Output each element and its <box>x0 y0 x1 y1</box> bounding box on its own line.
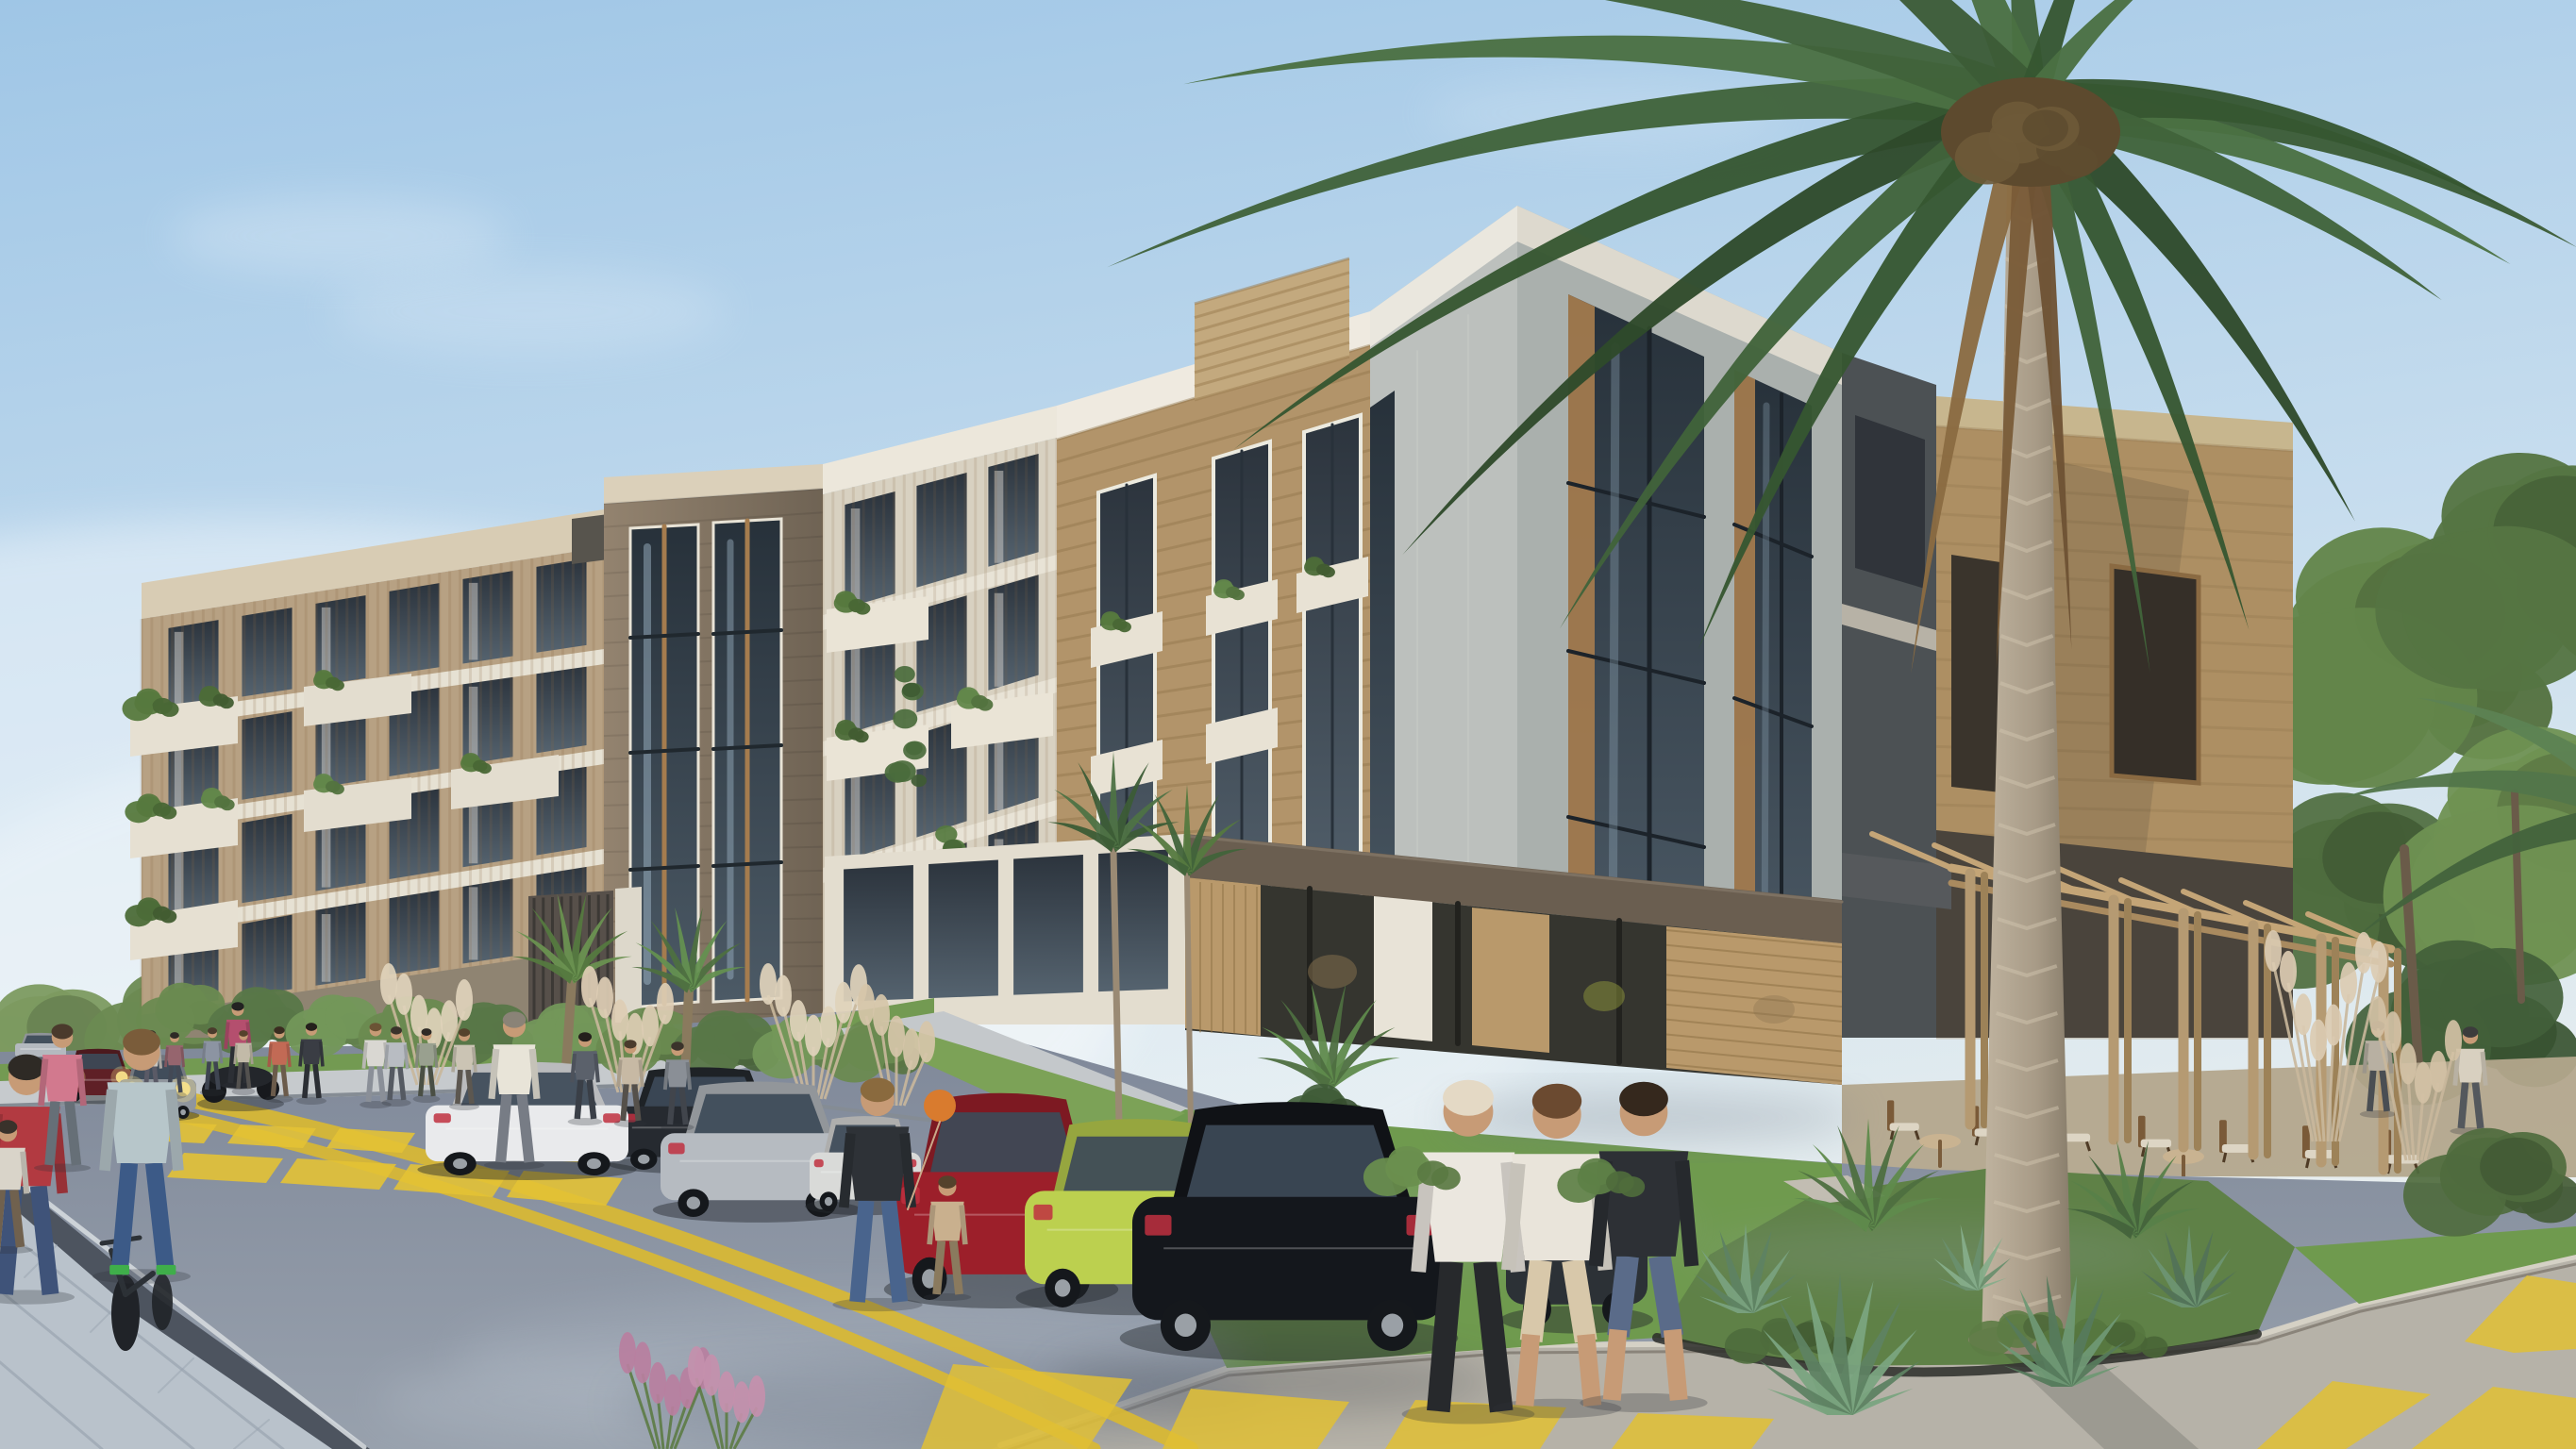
balcony-plant <box>848 727 864 740</box>
pampas-grass <box>596 976 613 1018</box>
arm <box>453 1047 455 1072</box>
balcony-plant <box>214 795 230 808</box>
leg <box>501 1094 507 1162</box>
leg <box>368 1066 371 1102</box>
leg <box>670 1087 674 1124</box>
cascading-vine <box>903 741 927 760</box>
leg <box>246 1062 249 1089</box>
leg <box>634 1084 638 1121</box>
torso <box>235 1043 251 1062</box>
arm <box>2365 1043 2367 1074</box>
pedestrian-shadow <box>381 1099 410 1107</box>
arm <box>532 1049 537 1099</box>
pampas-grass <box>456 979 473 1021</box>
leg <box>430 1066 434 1096</box>
pampas-grass <box>581 966 598 1008</box>
pedestrian-shadow <box>661 1124 694 1131</box>
base-grass <box>1969 1321 2014 1357</box>
leg <box>14 1190 21 1247</box>
leg <box>283 1065 287 1096</box>
leg <box>2369 1071 2373 1111</box>
arm <box>220 1043 222 1064</box>
balcony-plant <box>971 695 988 708</box>
flower-spikes <box>703 1355 720 1396</box>
shrub <box>1606 1171 1634 1193</box>
arm <box>79 1059 84 1107</box>
wood-pier <box>1472 908 1549 1053</box>
leg <box>2383 1071 2387 1111</box>
hub <box>453 1158 467 1169</box>
red-sedan-glass <box>929 1112 1077 1176</box>
balcony-plant <box>152 698 172 714</box>
pampas-grass <box>2384 1011 2401 1053</box>
shrub <box>2480 1138 2552 1195</box>
leg <box>70 1102 77 1166</box>
balcony-plant <box>1112 619 1127 630</box>
leg <box>207 1061 209 1090</box>
hub <box>180 1109 186 1115</box>
hub <box>687 1197 700 1209</box>
torso <box>42 1055 82 1102</box>
leg <box>120 1163 129 1274</box>
arm <box>572 1054 575 1082</box>
hair <box>503 1011 526 1027</box>
crown-fiber <box>2022 109 2068 146</box>
arm <box>688 1062 691 1090</box>
arm <box>844 1134 850 1208</box>
island-grass <box>1725 1328 1769 1364</box>
flower-spikes <box>733 1381 750 1423</box>
leg <box>0 1190 1 1247</box>
torso <box>301 1040 322 1064</box>
pedestrian-shadow <box>568 1118 603 1125</box>
leg <box>50 1102 56 1166</box>
torso <box>666 1059 690 1087</box>
torso <box>204 1041 221 1062</box>
silver-sedan-glass <box>694 1094 825 1136</box>
pampas-grass <box>2415 1062 2432 1104</box>
balcony-plant <box>326 677 340 689</box>
storefront-glazing <box>928 859 998 998</box>
arm <box>171 1090 178 1171</box>
cafe-chair <box>1890 1123 1919 1130</box>
shrub <box>1363 1158 1412 1196</box>
pampas-grass <box>873 994 890 1036</box>
leg-skin <box>1672 1330 1679 1400</box>
left-wing-windows <box>389 888 439 974</box>
leg <box>522 1094 529 1162</box>
leg <box>858 1201 867 1302</box>
leg <box>623 1084 626 1121</box>
arm <box>105 1090 112 1171</box>
pedestrian-shadow <box>449 1103 479 1110</box>
cafe-chair <box>1976 1137 1978 1145</box>
torso <box>364 1040 387 1066</box>
shoe <box>109 1265 129 1274</box>
connector-window <box>1855 415 1925 589</box>
balcony-plant <box>473 760 487 772</box>
arm <box>929 1206 933 1245</box>
balcony-plant <box>848 599 865 612</box>
pampas-grass <box>2369 996 2386 1038</box>
cafe-chair <box>2142 1147 2144 1157</box>
pampas-grass <box>918 1021 935 1062</box>
leg <box>590 1080 594 1119</box>
arm <box>1509 1164 1518 1271</box>
cafe-chair <box>1891 1131 1893 1140</box>
pampas-grass <box>395 974 412 1015</box>
pampas-grass <box>805 1015 822 1057</box>
pampas-grass-tall <box>2340 962 2357 1004</box>
balcony-plant <box>326 781 340 792</box>
hair <box>1619 1082 1668 1117</box>
shoe <box>157 1265 176 1274</box>
leg <box>1573 1260 1586 1341</box>
woman-crossing-denim-shadow <box>1580 1393 1707 1412</box>
taillight <box>434 1113 451 1123</box>
storefront-glazing <box>1013 855 1083 995</box>
arm <box>269 1044 271 1067</box>
flower-spikes <box>688 1346 705 1388</box>
hair <box>8 1055 44 1081</box>
black-sedan-glass <box>1185 1125 1398 1203</box>
pampas-grass <box>835 982 852 1024</box>
hair <box>1443 1080 1494 1116</box>
balcony-plant <box>213 693 229 706</box>
leg <box>1485 1262 1502 1411</box>
shrub <box>1557 1169 1600 1203</box>
hair <box>578 1032 592 1041</box>
hair <box>274 1026 284 1034</box>
flower-spikes <box>664 1374 681 1416</box>
torso <box>386 1042 407 1067</box>
leg-skin <box>1525 1335 1531 1406</box>
leg <box>2461 1082 2465 1128</box>
leg <box>1531 1260 1541 1341</box>
left-sidewalk-woman-pink-shadow <box>34 1164 91 1173</box>
terrace-guest-shadow <box>2360 1110 2396 1118</box>
arm <box>385 1045 387 1070</box>
arm <box>905 1134 912 1208</box>
cloud <box>330 268 727 355</box>
torso <box>108 1082 176 1163</box>
leg <box>421 1066 424 1096</box>
cascading-vine <box>902 683 920 697</box>
interior-chair <box>1583 981 1625 1011</box>
crown-fiber <box>1955 132 2020 184</box>
leg <box>1660 1257 1673 1337</box>
pedestrian-white-outfit-shadow <box>484 1160 544 1170</box>
pampas-grass <box>858 984 875 1025</box>
hair <box>938 1175 956 1189</box>
leg <box>315 1064 319 1098</box>
cascading-vine <box>893 709 917 729</box>
flower-spikes <box>748 1375 765 1417</box>
torso <box>417 1043 436 1066</box>
hair <box>391 1026 402 1034</box>
woman-with-balloon-shadow <box>832 1298 922 1311</box>
leg <box>154 1163 166 1274</box>
arm <box>416 1045 418 1068</box>
pampas-grass <box>775 975 792 1017</box>
hair <box>671 1041 683 1051</box>
balcony-plant <box>1316 564 1330 575</box>
balcony-plant <box>122 696 153 721</box>
pampas-grass <box>2400 1043 2417 1085</box>
pampas-grass <box>2445 1020 2462 1061</box>
arm <box>235 1045 237 1064</box>
pampas-grass-tall <box>2265 930 2282 972</box>
torso <box>930 1202 963 1241</box>
pampas-grass <box>657 983 674 1024</box>
shrub <box>1417 1160 1448 1186</box>
pedestrian-shadow <box>200 1089 225 1096</box>
hair <box>306 1023 317 1031</box>
torso <box>846 1126 910 1201</box>
arm <box>288 1044 290 1067</box>
flower-spikes <box>619 1332 636 1374</box>
hub <box>1055 1279 1071 1297</box>
torso <box>454 1045 475 1070</box>
arm <box>300 1041 302 1066</box>
pampas-grass <box>790 1000 807 1041</box>
cloud <box>170 196 510 275</box>
leg <box>889 1201 900 1302</box>
hair <box>239 1030 247 1037</box>
thin-palm-trunk <box>1187 875 1191 1130</box>
arm <box>665 1062 668 1090</box>
leg <box>379 1066 383 1102</box>
leg <box>400 1067 404 1100</box>
taillight <box>1033 1205 1052 1220</box>
leg <box>39 1186 51 1294</box>
torso <box>573 1051 597 1079</box>
leg <box>273 1065 276 1096</box>
pampas-grass <box>426 1008 443 1049</box>
balcony-plant <box>125 801 152 823</box>
right-block-window <box>1951 555 2000 792</box>
pampas-grass-tall <box>2355 932 2372 974</box>
pampas-grass-tall <box>2280 951 2297 992</box>
orange-balloon <box>924 1090 956 1122</box>
cascading-vine <box>889 760 916 782</box>
hair <box>231 1002 243 1010</box>
hub <box>1381 1314 1403 1337</box>
hair <box>123 1029 160 1056</box>
leg <box>390 1067 393 1100</box>
left-wing-windows <box>389 583 439 675</box>
taillight <box>1145 1215 1171 1236</box>
arm <box>203 1043 205 1064</box>
arm <box>363 1042 366 1069</box>
leg <box>230 1046 233 1083</box>
arm <box>405 1045 407 1070</box>
pampas-grass <box>820 1006 837 1047</box>
arm <box>42 1059 46 1107</box>
right-block-window <box>2112 566 2199 783</box>
pampas-grass <box>760 963 777 1005</box>
fan-palm-trunk <box>566 981 572 1066</box>
arm <box>182 1047 184 1067</box>
torso <box>270 1041 290 1064</box>
hair <box>2463 1026 2479 1038</box>
leg-skin <box>1586 1335 1593 1406</box>
leg <box>215 1061 218 1090</box>
white-pier <box>1374 896 1432 1041</box>
leg <box>238 1062 240 1089</box>
crosswalk-stripes-bottom <box>1612 1413 1774 1449</box>
storefront-glazing <box>1098 849 1168 991</box>
leg <box>305 1064 308 1098</box>
cafe-chair <box>2141 1140 2171 1148</box>
pampas-grass <box>611 999 628 1041</box>
hair <box>421 1028 431 1036</box>
flower-spikes <box>718 1372 735 1413</box>
hair <box>459 1028 470 1037</box>
hub <box>587 1158 601 1169</box>
child-shadow <box>924 1293 971 1301</box>
torso <box>166 1045 183 1065</box>
rendered-scene <box>0 0 2576 1449</box>
arm <box>640 1060 643 1087</box>
hair <box>52 1024 74 1039</box>
pampas-grass-tall <box>2310 1020 2327 1061</box>
interior-glow <box>1753 995 1795 1024</box>
leg <box>2475 1082 2480 1128</box>
arm <box>23 1152 26 1194</box>
balcony-plant <box>153 803 171 817</box>
torso <box>619 1058 642 1084</box>
arm <box>2483 1052 2485 1086</box>
leg <box>1438 1262 1451 1411</box>
leg <box>681 1087 685 1124</box>
balcony-plant <box>1226 587 1240 598</box>
torso <box>2456 1049 2484 1083</box>
arm <box>1682 1161 1692 1267</box>
arm <box>618 1060 621 1087</box>
arm <box>962 1206 965 1245</box>
pedestrian-shadow <box>265 1095 293 1103</box>
arm <box>595 1054 598 1082</box>
pampas-grass <box>380 963 397 1005</box>
balcony-plant <box>153 907 171 921</box>
arm <box>321 1041 323 1066</box>
flower-spikes <box>634 1341 651 1383</box>
arm <box>435 1045 437 1068</box>
leg <box>577 1080 581 1119</box>
torso <box>493 1044 536 1094</box>
arm <box>492 1049 496 1099</box>
pedestrian-shadow <box>413 1095 441 1103</box>
interior-glow <box>1308 955 1357 989</box>
leg <box>953 1241 959 1294</box>
hub <box>825 1197 832 1206</box>
leg <box>458 1070 460 1104</box>
hair <box>1532 1084 1581 1119</box>
pampas-grass <box>903 1028 920 1070</box>
leg <box>468 1070 472 1104</box>
taillight <box>814 1159 824 1167</box>
pampas-grass-tall <box>2295 993 2312 1035</box>
leg <box>1618 1257 1628 1337</box>
pedestrian-shadow <box>614 1120 646 1127</box>
pampas-grass-tall <box>2325 1005 2342 1046</box>
island-grass <box>2104 1322 2135 1347</box>
pampas-grass-tall <box>2370 941 2387 983</box>
hair <box>861 1078 895 1103</box>
arm <box>226 1023 228 1049</box>
balcony-plant <box>125 905 152 926</box>
hub <box>1175 1314 1196 1337</box>
pedestrian-shadow <box>232 1088 256 1095</box>
hair <box>370 1023 382 1031</box>
arm <box>165 1047 167 1067</box>
hair <box>624 1040 636 1048</box>
taillight <box>668 1143 684 1155</box>
leg <box>177 1065 180 1092</box>
flower-spikes <box>649 1362 666 1404</box>
cascading-vine <box>895 666 915 683</box>
arm <box>474 1047 476 1072</box>
arm <box>250 1045 252 1064</box>
leg-skin <box>1612 1330 1618 1400</box>
hub <box>638 1155 649 1164</box>
pampas-grass <box>888 1016 905 1058</box>
hair <box>208 1027 217 1034</box>
architectural-rendering: Architectural rendering — modern apartme… <box>0 0 2576 1449</box>
hair <box>170 1032 179 1039</box>
leg <box>937 1241 942 1294</box>
pedestrian-shadow <box>296 1097 326 1105</box>
